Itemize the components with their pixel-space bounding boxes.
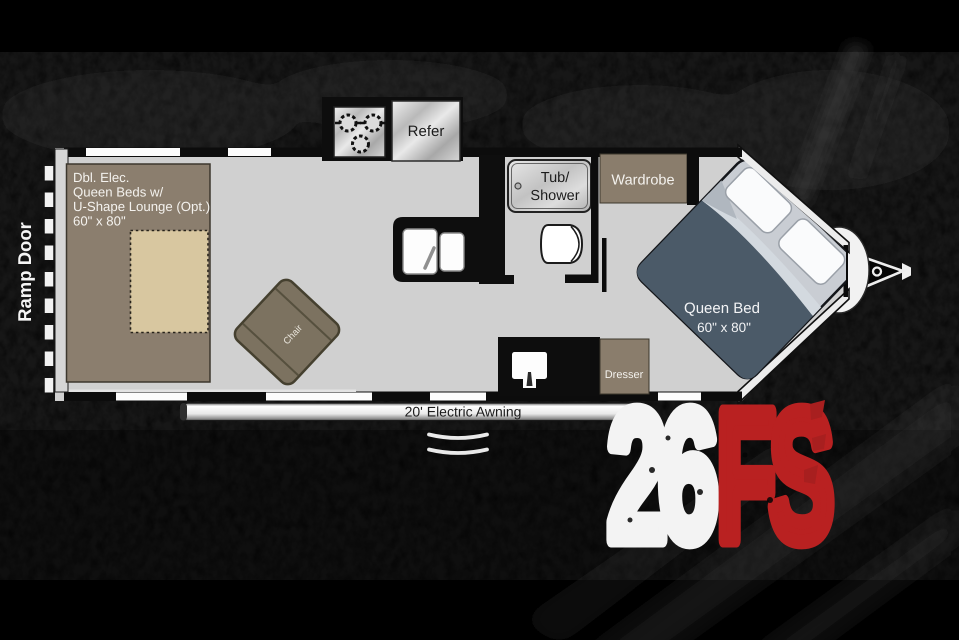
svg-text:Dbl. Elec.: Dbl. Elec. (73, 170, 129, 185)
svg-text:Queen Bed: Queen Bed (684, 300, 760, 317)
svg-text:Refer: Refer (408, 123, 445, 140)
svg-text:60" x 80": 60" x 80" (697, 320, 751, 335)
svg-text:20' Electric Awning: 20' Electric Awning (405, 404, 522, 420)
svg-text:Shower: Shower (530, 188, 579, 204)
svg-text:Wardrobe: Wardrobe (611, 173, 674, 189)
svg-text:60" x 80": 60" x 80" (73, 214, 126, 229)
svg-text:Tub/: Tub/ (541, 170, 570, 186)
svg-text:Ramp Door: Ramp Door (14, 222, 35, 322)
svg-text:26: 26 (607, 373, 715, 580)
svg-text:U-Shape Lounge (Opt.): U-Shape Lounge (Opt.) (73, 199, 210, 214)
svg-text:Queen Beds w/: Queen Beds w/ (73, 185, 164, 200)
